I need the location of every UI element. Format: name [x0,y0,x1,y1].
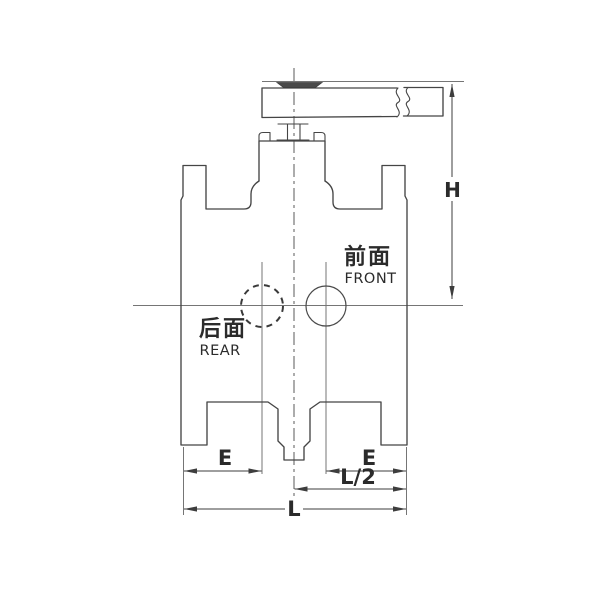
l-label: L [287,497,300,521]
gland-bracket-left [259,133,270,142]
front-label-en: FRONT [345,271,397,287]
l-half-label: L/2 [340,465,376,489]
front-label-cn: 前面 [344,244,392,270]
handle-lever [262,83,443,118]
bottom-dimensions: E E L/2 L [184,446,407,521]
gland-bracket-right [314,133,325,142]
rear-label-en: REAR [200,343,241,359]
valve-technical-drawing: H E E L/2 L 前面 FRONT 后面 REAR [0,0,600,600]
break-symbol [396,88,409,118]
bonnet [259,141,325,181]
rear-label-cn: 后面 [199,317,247,342]
body-right-half [294,166,407,461]
handle-bar [262,88,397,118]
h-label: H [444,178,461,202]
handle-hub-wedge [277,83,322,88]
e-left-label: E [218,446,232,470]
front-face-annotation: 前面 FRONT [344,244,397,287]
stem-assembly [259,124,325,141]
rear-face-annotation: 后面 REAR [199,317,247,359]
stem-spool [277,124,309,140]
body-left-half [181,166,294,461]
drawing-canvas: H E E L/2 L 前面 FRONT 后面 REAR [0,0,600,600]
